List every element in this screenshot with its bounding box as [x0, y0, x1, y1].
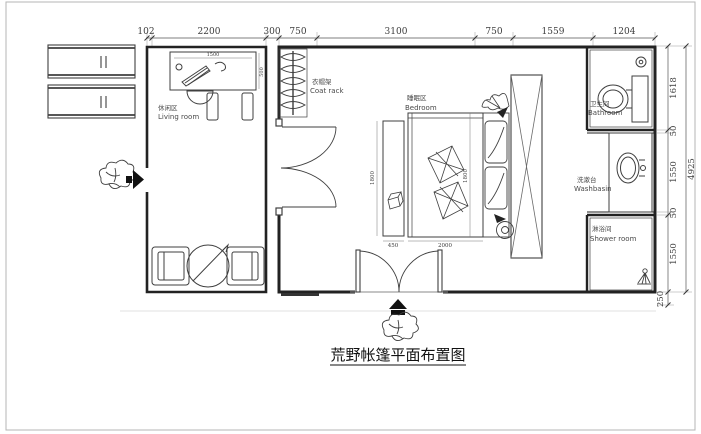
curved-doors-west: [276, 119, 336, 215]
plant-scribble-bottom: [382, 312, 418, 340]
living-room-label-zh: 休闲区: [158, 103, 178, 112]
washbasin-counter: [609, 133, 652, 212]
dim-top-1: 2200: [198, 27, 221, 37]
dim-top-7: 1204: [613, 27, 636, 37]
title-block: 荒野帐篷平面布置图: [330, 346, 466, 365]
bed: [408, 113, 509, 237]
dim-desk-width: 1500: [207, 52, 220, 58]
entrance-bottom: [382, 299, 418, 341]
lamp-scribble-top: [482, 93, 509, 118]
bed-cushions: [428, 146, 468, 219]
dim-right-2: 1550: [669, 161, 679, 183]
shower-label-zh: 淋浴间: [592, 224, 612, 233]
dim-bench-width: 450: [388, 243, 399, 249]
head-pillows: [485, 121, 507, 209]
stool: [242, 93, 253, 120]
french-doors-south: [350, 250, 448, 292]
living-room-furniture: [152, 52, 264, 287]
bench-cube-scribble: [388, 192, 403, 209]
dim-right-0: 1618: [669, 77, 679, 99]
desk-item-scribble: [176, 62, 226, 86]
entrance-arrow-left-icon: [126, 170, 144, 189]
room-labels: 休闲区 Living room 衣帽架 Coat rack 睡眠区 Bedroo…: [158, 77, 637, 243]
coat-rack-label-en: Coat rack: [310, 87, 344, 95]
armchair-left: [152, 247, 189, 285]
round-table: [187, 245, 229, 287]
bedroom-dimension-labels: 1800 1800 450 2000 1500 500: [207, 52, 469, 249]
page-title: 荒野帐篷平面布置图: [330, 346, 465, 364]
right-dimension-labels: 1618 50 1550 50 1550 250 4925: [656, 77, 697, 307]
dim-right-4: 1550: [669, 243, 679, 265]
dim-right-3: 50: [669, 208, 679, 219]
dim-right-total: 4925: [687, 158, 697, 180]
dim-desk-depth: 500: [259, 67, 265, 77]
bedside-bench: [383, 121, 404, 236]
door-step: [281, 293, 319, 296]
shower-head-icon: [637, 269, 651, 284]
floor-plan-screenshot: 102 2200 300 750 3100 750 1559 1204: [0, 0, 701, 434]
washbasin-label-en: Washbasin: [574, 185, 612, 193]
dim-bed-length: 2000: [438, 243, 452, 249]
dim-top-5: 750: [485, 27, 502, 37]
bedroom-furniture: [383, 75, 542, 258]
dim-top-0: 102: [137, 27, 154, 37]
coat-rack: [279, 49, 307, 117]
dim-bench-height: 1800: [370, 171, 376, 185]
shower-label-en: Shower room: [590, 235, 637, 243]
dim-bed-width: 1800: [463, 169, 469, 183]
armchair-right: [227, 247, 264, 285]
lounger: [48, 85, 135, 118]
stool: [207, 93, 218, 120]
wardrobe-crossbox: [511, 75, 542, 258]
dim-right-1: 50: [669, 126, 679, 137]
floor-plan: 102 2200 300 750 3100 750 1559 1204: [0, 0, 701, 434]
top-dimension-labels: 102 2200 300 750 3100 750 1559 1204: [137, 27, 635, 37]
lounger: [48, 45, 135, 78]
living-room: [147, 47, 266, 292]
bedroom-label-en: Bedroom: [405, 104, 437, 112]
entrance-left: [99, 160, 144, 189]
dim-top-6: 1559: [542, 27, 565, 37]
bathroom-fixtures: [590, 50, 652, 290]
hanger-icons: [281, 52, 305, 110]
bathroom-label-en: Bathroom: [588, 109, 623, 117]
dim-top-3: 750: [289, 27, 306, 37]
bedroom-label-zh: 睡眠区: [407, 94, 427, 102]
dim-right-5: 250: [656, 291, 666, 307]
bathroom-label-zh: 卫生间: [590, 99, 610, 108]
outdoor-loungers: [48, 45, 135, 118]
living-room-label-en: Living room: [158, 113, 199, 121]
plant-scribble-left: [99, 160, 135, 188]
dim-top-2: 300: [263, 27, 280, 37]
dim-top-4: 3100: [385, 27, 408, 37]
washbasin-label-zh: 洗漱台: [577, 175, 597, 184]
tp-holder-icon: [636, 57, 646, 67]
coat-rack-label-zh: 衣帽架: [312, 77, 332, 86]
